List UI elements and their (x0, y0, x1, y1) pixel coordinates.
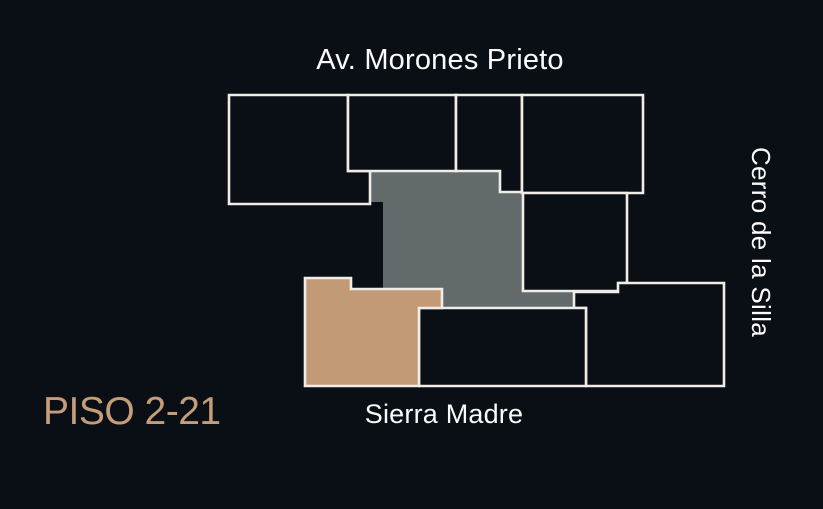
unit-outline-top-right[interactable] (522, 95, 643, 193)
street-label-top: Av. Morones Prieto (40, 46, 823, 75)
unit-outline-mid-right[interactable] (523, 193, 627, 291)
unit-outline-bottom-right[interactable] (574, 283, 724, 386)
street-label-right: Cerro de la Silla (748, 147, 774, 337)
unit-outline-bottom-mid[interactable] (419, 308, 586, 386)
floor-label: PISO 2-21 (43, 392, 221, 431)
unit-outline-top-mid[interactable] (348, 95, 456, 171)
street-label-bottom: Sierra Madre (244, 401, 644, 428)
floor-plan-viewport: Av. Morones Prieto Cerro de la Silla Sie… (0, 0, 823, 509)
